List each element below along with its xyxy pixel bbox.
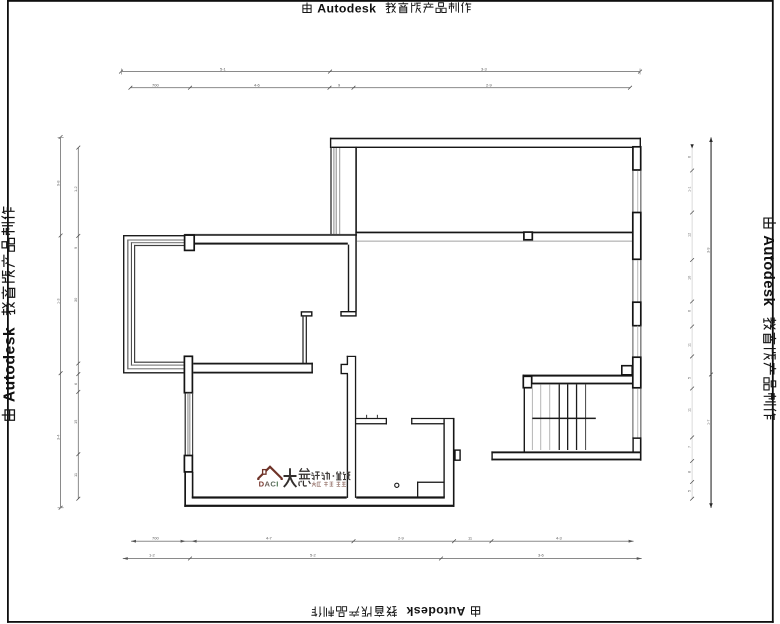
svg-text:1-3: 1-3 bbox=[56, 299, 60, 305]
svg-text:4-7: 4-7 bbox=[266, 535, 273, 540]
svg-text:8: 8 bbox=[688, 471, 692, 473]
svg-text:2-9: 2-9 bbox=[398, 535, 405, 540]
svg-text:11: 11 bbox=[73, 473, 78, 477]
svg-text:4-6: 4-6 bbox=[254, 82, 261, 87]
svg-text:5-1: 5-1 bbox=[220, 66, 227, 71]
svg-text:15: 15 bbox=[73, 420, 78, 424]
svg-text:6: 6 bbox=[73, 383, 78, 385]
svg-text:11: 11 bbox=[688, 408, 692, 412]
svg-text:6: 6 bbox=[688, 310, 692, 312]
svg-text:4-3: 4-3 bbox=[556, 535, 563, 540]
svg-text:700: 700 bbox=[152, 82, 159, 87]
svg-text:2-9: 2-9 bbox=[486, 82, 493, 87]
svg-text:1-1: 1-1 bbox=[688, 187, 692, 193]
svg-text:3-9: 3-9 bbox=[707, 248, 711, 254]
svg-text:9-8: 9-8 bbox=[56, 181, 60, 187]
svg-text:12: 12 bbox=[688, 233, 692, 237]
svg-text:5: 5 bbox=[688, 377, 692, 379]
svg-text:3-3: 3-3 bbox=[481, 66, 488, 71]
svg-text:3-6: 3-6 bbox=[538, 553, 545, 558]
svg-text:10: 10 bbox=[688, 276, 692, 280]
svg-text:9: 9 bbox=[73, 247, 78, 249]
svg-text:6: 6 bbox=[688, 156, 692, 158]
svg-text:DACI: DACI bbox=[259, 479, 279, 488]
svg-text:3-4: 3-4 bbox=[56, 435, 60, 441]
svg-text:1-2: 1-2 bbox=[73, 186, 78, 192]
svg-text:5: 5 bbox=[688, 490, 692, 492]
svg-text:700: 700 bbox=[152, 535, 159, 540]
svg-text:1-7: 1-7 bbox=[707, 420, 711, 426]
svg-text:1-2: 1-2 bbox=[149, 553, 156, 558]
svg-text:5-2: 5-2 bbox=[310, 553, 317, 558]
svg-text:7: 7 bbox=[688, 446, 692, 448]
svg-text:11: 11 bbox=[688, 343, 692, 347]
